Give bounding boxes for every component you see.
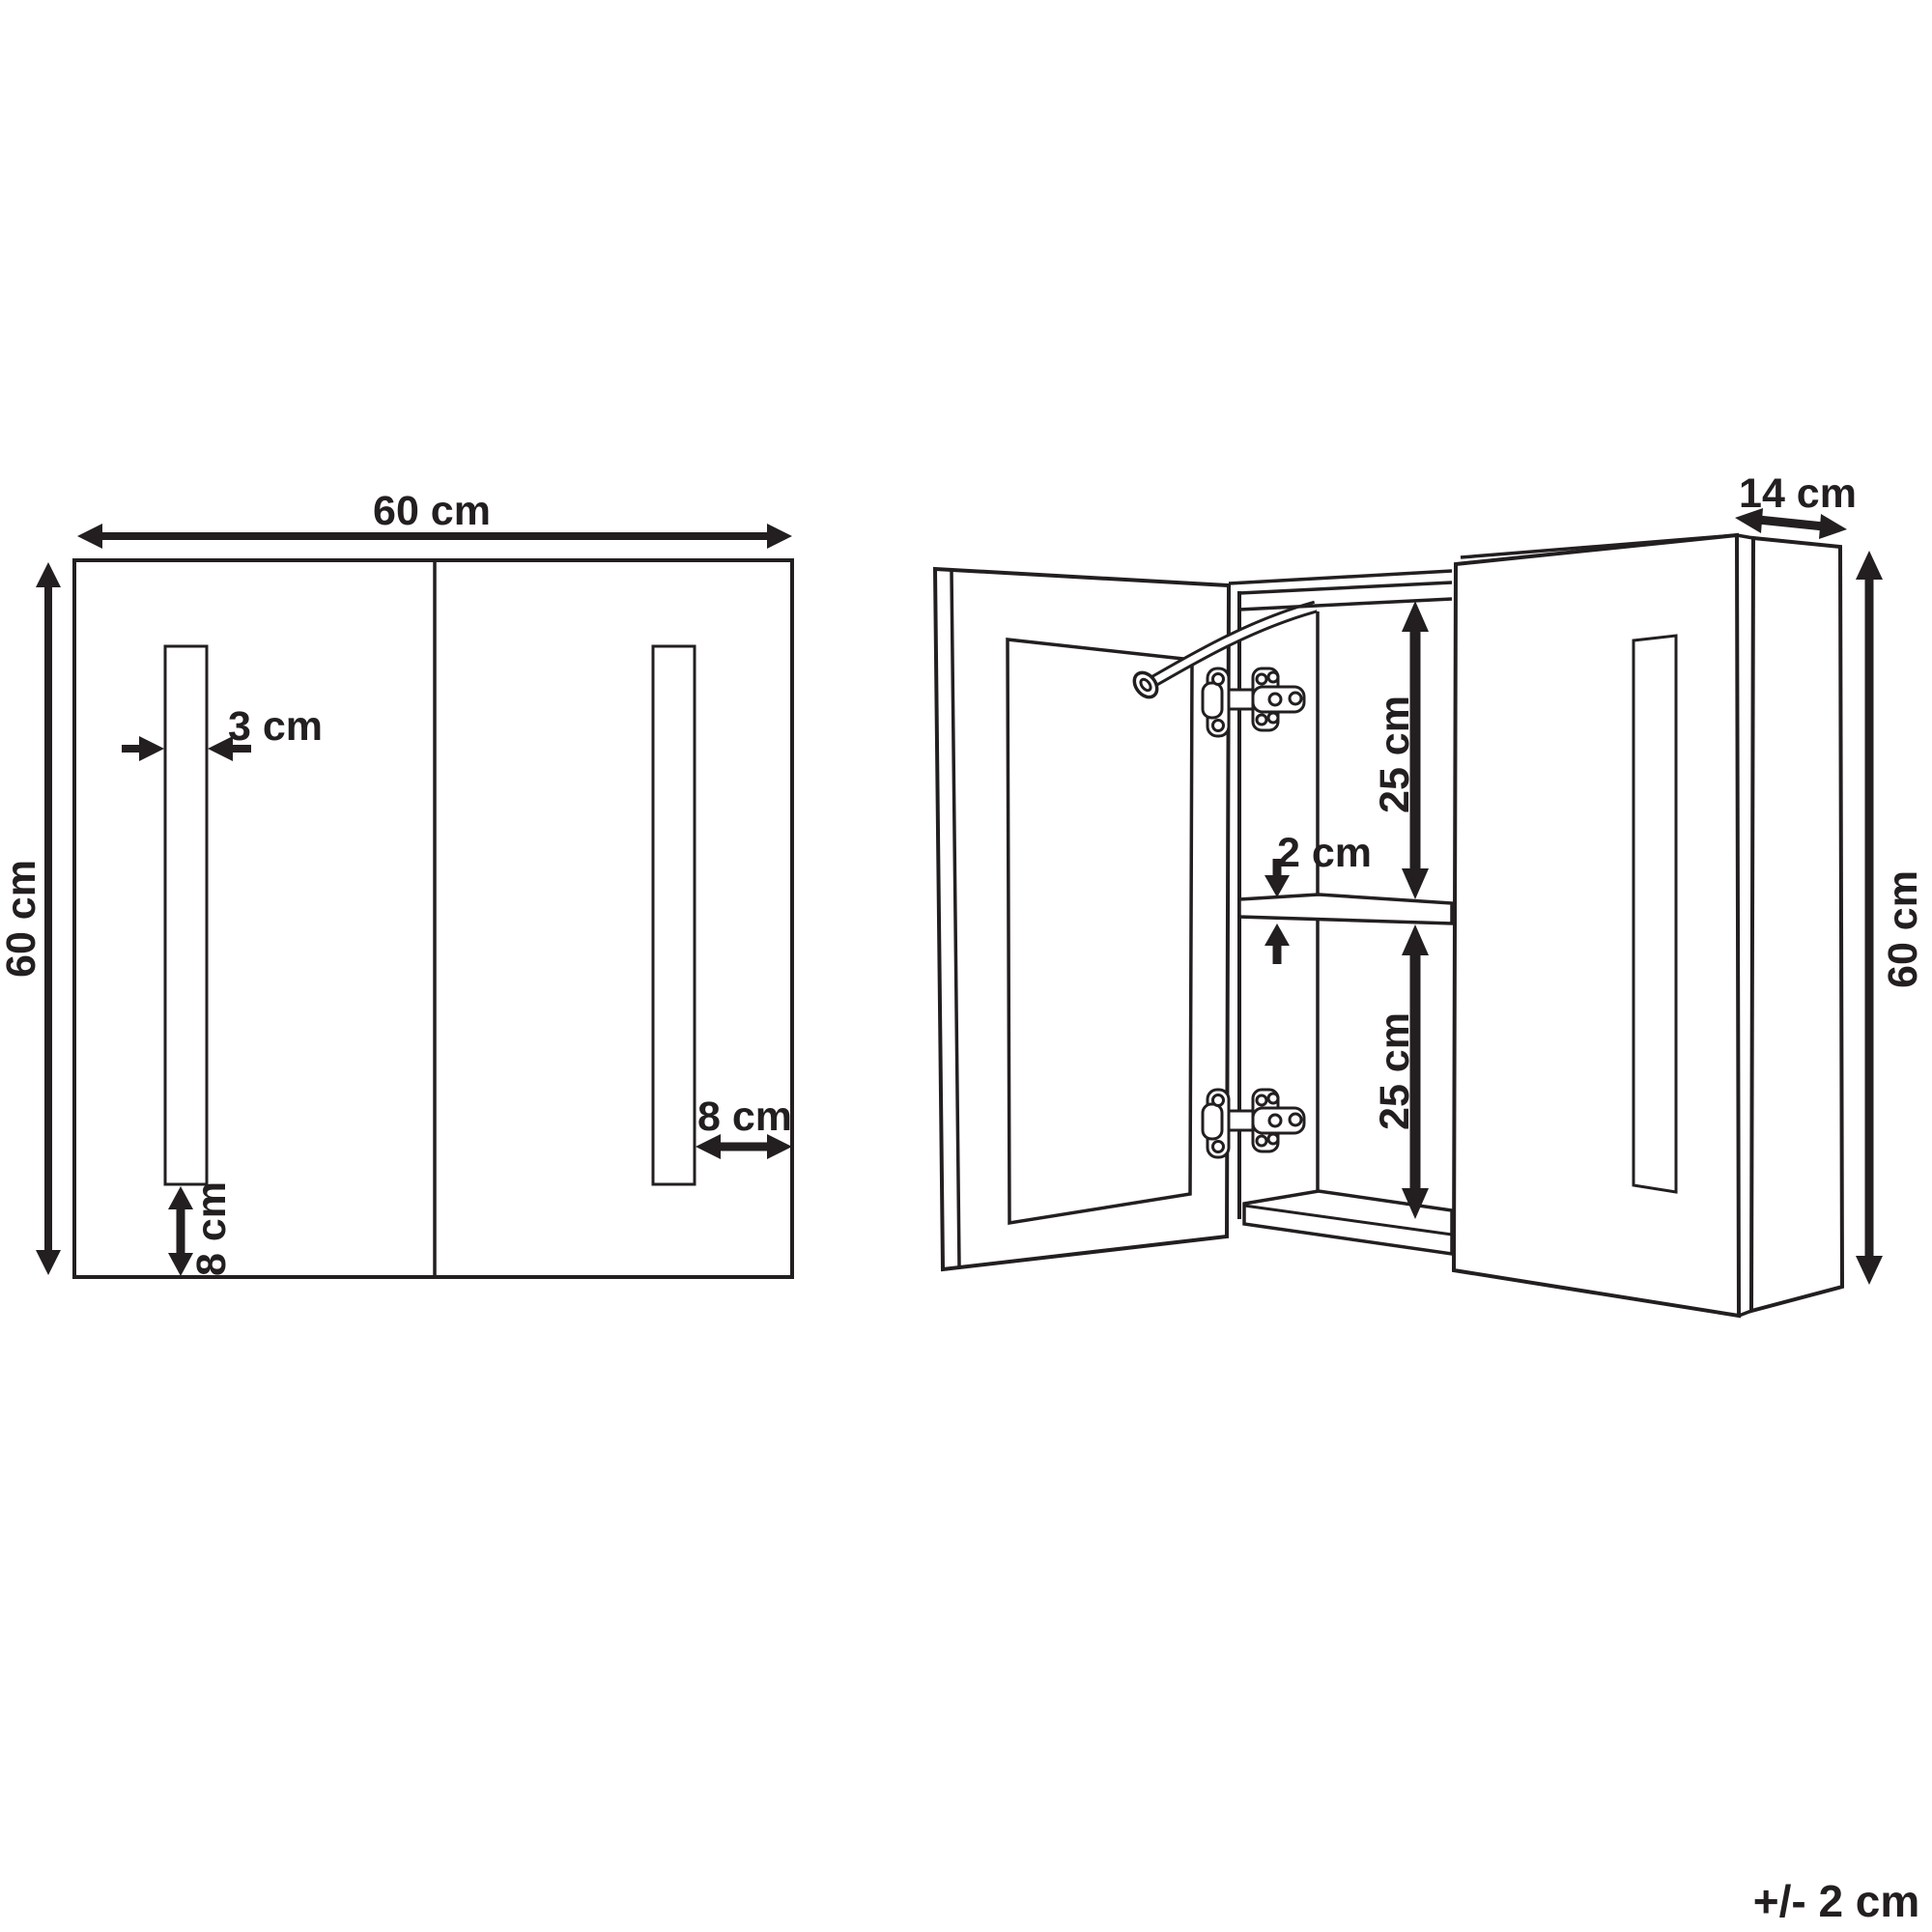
open-view-height-label: 60 cm [1880, 870, 1926, 988]
closed-door-front [1454, 535, 1739, 1316]
cabinet-dimension-diagram: 60 cm 60 cm 3 cm 8 cm 8 cm [0, 0, 1932, 1932]
top-panel [1229, 571, 1452, 610]
cabinet-side-panel [1751, 538, 1842, 1311]
front-view: 60 cm 60 cm 3 cm 8 cm 8 cm [0, 488, 792, 1277]
diagram-svg: 60 cm 60 cm 3 cm 8 cm 8 cm [0, 0, 1932, 1932]
shelf-thickness-label: 2 cm [1277, 830, 1372, 876]
hinge-bottom [1203, 1090, 1304, 1157]
shelf [1239, 895, 1452, 923]
front-height-label: 60 cm [0, 860, 44, 978]
depth-label: 14 cm [1739, 470, 1857, 517]
open-door [935, 569, 1229, 1269]
strip-width-label: 3 cm [228, 703, 323, 750]
right-led-strip [653, 646, 695, 1184]
open-view-height-arrow [1856, 551, 1883, 1285]
front-width-label: 60 cm [373, 488, 491, 534]
strip-bottom-gap-label: 8 cm [188, 1181, 235, 1276]
closed-door-led-strip [1634, 636, 1676, 1192]
closed-door-assembly [1454, 535, 1842, 1316]
left-led-strip [165, 646, 207, 1184]
open-view: 25 cm 2 cm 25 cm 14 cm 60 cm [935, 470, 1926, 1316]
lower-compartment-label: 25 cm [1372, 1012, 1418, 1130]
strip-edge-gap-label: 8 cm [697, 1094, 792, 1140]
hinge-top [1203, 668, 1304, 736]
upper-compartment-label: 25 cm [1372, 696, 1418, 813]
tolerance-note: +/- 2 cm [1753, 1876, 1920, 1926]
